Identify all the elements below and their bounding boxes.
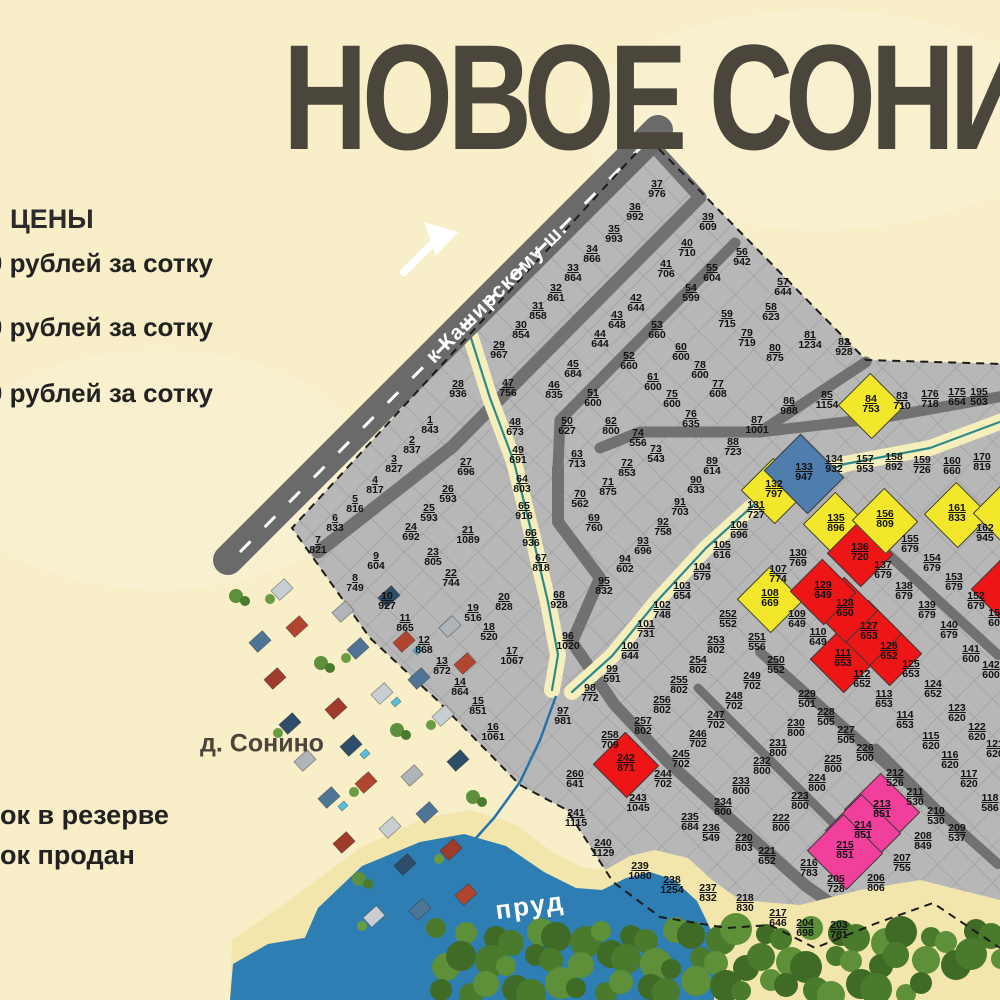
plot-213: 213851 [873,799,891,819]
plot-132: 132797 [765,479,783,499]
plot-126: 126652 [880,641,898,661]
plot-141: 141600 [962,644,980,664]
plot-49: 49691 [509,445,527,465]
status-line-reserved: ок в резерве [0,800,169,831]
plot-14: 14864 [451,677,469,697]
plot-239: 2391080 [628,861,651,881]
plot-11: 11865 [396,613,414,633]
plot-175: 175654 [948,387,966,407]
plot-74: 74556 [629,428,647,448]
plot-230: 230800 [787,718,805,738]
plot-226: 226500 [856,743,874,763]
plot-159: 159726 [913,455,931,475]
plot-108: 108669 [761,588,779,608]
plot-107: 107774 [769,564,787,584]
plot-28: 28936 [449,379,467,399]
plot-236: 236549 [702,823,720,843]
plot-54: 54599 [682,283,700,303]
plot-67: 67818 [532,553,550,573]
plot-260: 260641 [566,769,584,789]
plot-30: 30854 [512,320,530,340]
plot-58: 58623 [762,302,780,322]
plot-203: 203781 [830,920,848,940]
plot-134: 134932 [825,454,843,474]
plot-113: 113653 [875,689,893,709]
plot-249: 249702 [743,671,761,691]
plot-53: 53660 [648,320,666,340]
plot-137: 137679 [874,560,892,580]
plot-247: 247702 [707,710,725,730]
plot-86: 86988 [780,396,798,416]
plot-140: 140679 [940,620,958,640]
plot-208: 208849 [914,831,932,851]
plot-162: 162945 [976,523,994,543]
plot-241: 2411115 [565,808,587,828]
plot-221: 221652 [758,846,776,866]
plot-35: 35993 [605,224,623,244]
price-line-2: 00 рублей за сотку [0,312,213,343]
plot-216: 216783 [800,858,818,878]
plot-37: 37976 [648,179,666,199]
plot-48: 48673 [506,417,524,437]
plot-157: 157953 [856,454,874,474]
plot-195: 195503 [970,387,988,407]
plot-82: 82928 [835,337,853,357]
plot-256: 256802 [653,695,671,715]
plot-20: 20828 [495,592,513,612]
plot-27: 27696 [457,457,475,477]
plot-24: 24692 [402,522,420,542]
plot-72: 72853 [618,458,636,478]
plot-95: 95832 [595,576,613,596]
plot-52: 52660 [620,351,638,371]
plot-64: 64803 [513,474,531,494]
plot-93: 93696 [634,536,652,556]
plot-240: 2401129 [592,838,615,858]
plot-227: 227505 [837,725,855,745]
plot-121: 121620 [986,739,1000,759]
plot-142: 142600 [982,660,1000,680]
plot-65: 65916 [515,501,533,521]
plot-237: 237832 [699,883,717,903]
plot-217: 217646 [769,908,787,928]
plot-117: 117620 [960,769,978,789]
plot-83: 83710 [893,391,911,411]
land-plot-map-poster: к Каширскому ш. д. Сонино пруд 184328373… [0,0,1000,1000]
plot-122: 122620 [968,722,986,742]
plot-78: 78600 [691,360,709,380]
plot-34: 34866 [583,244,601,264]
plot-105: 105616 [713,540,731,560]
plot-90: 90633 [687,475,705,495]
plot-51: 51600 [584,388,602,408]
plot-251: 251556 [748,632,766,652]
plot-212: 212526 [886,768,904,788]
plot-110: 110649 [809,627,827,647]
plot-45: 45684 [564,359,582,379]
plot-161: 161833 [948,503,966,523]
plot-112: 112652 [853,669,871,689]
plot-225: 225800 [824,754,842,774]
plot-210: 210530 [927,806,945,826]
plot-101: 101731 [637,619,655,639]
status-line-sold: ок продан [0,840,135,871]
plot-10: 10927 [378,591,396,611]
plot-102: 102748 [653,600,671,620]
plot-26: 26593 [439,484,457,504]
plot-96: 961020 [556,631,579,651]
plot-41: 41706 [657,259,675,279]
plot-12: 12868 [415,635,433,655]
plot-220: 220803 [735,833,753,853]
plot-21: 211089 [456,525,479,545]
plot-214: 214851 [854,820,872,840]
plot-124: 124652 [924,679,942,699]
plot-233: 233800 [732,776,750,796]
plot-253: 253802 [707,635,725,655]
plot-69: 69760 [585,513,603,533]
plot-31: 31858 [529,301,547,321]
plot-98: 98772 [581,683,599,703]
plot-138: 138679 [895,581,913,601]
plot-19: 19516 [464,603,482,623]
plot-234: 234800 [714,797,732,817]
plot-73: 73543 [647,444,665,464]
plot-152: 152679 [967,591,985,611]
plot-9: 9604 [367,551,385,571]
plot-8: 8749 [346,573,364,593]
plot-80: 80875 [766,343,784,363]
plot-139: 139679 [918,600,936,620]
plot-111: 111653 [834,648,852,668]
plot-6: 6833 [326,513,344,533]
plot-79: 79719 [738,328,756,348]
plot-91: 91703 [671,497,689,517]
plot-206: 206806 [867,873,885,893]
price-legend-heading: ЦЕНЫ [10,204,94,235]
plot-92: 92758 [654,517,672,537]
plot-60: 60600 [672,342,690,362]
plot-70: 70562 [571,489,589,509]
plot-238: 2381254 [660,875,683,895]
plot-1: 1843 [421,415,439,435]
plot-248: 248702 [725,691,743,711]
plot-209: 209537 [948,823,966,843]
plot-5: 5816 [346,494,364,514]
plot-100: 100644 [621,641,639,661]
plot-242: 242871 [617,753,635,773]
plot-222: 222800 [772,813,790,833]
plot-103: 103654 [673,581,691,601]
plot-125: 125653 [902,659,920,679]
plot-84: 84753 [862,394,880,414]
plot-88: 88723 [724,437,742,457]
plot-44: 44644 [591,329,609,349]
plot-59: 59715 [718,309,736,329]
plot-254: 254802 [689,655,707,675]
plot-215: 215851 [836,840,854,860]
plot-158: 158892 [885,452,903,472]
plot-205: 205728 [827,874,845,894]
plot-109: 109649 [788,609,806,629]
plot-17: 171067 [500,646,523,666]
plot-75: 75600 [663,389,681,409]
plot-47: 47756 [499,378,517,398]
plot-207: 207755 [893,853,911,873]
plot-258: 258709 [601,730,619,750]
plot-229: 229501 [798,689,816,709]
plot-218: 218830 [736,893,754,913]
plot-32: 32861 [547,283,565,303]
plot-4: 4817 [366,475,384,495]
price-line-3: 0 рублей за сотку [0,378,213,409]
plot-13: 13872 [433,656,451,676]
plot-94: 94602 [616,554,634,574]
plot-244: 244702 [654,769,672,789]
plot-155: 155679 [901,534,919,554]
plot-56: 56942 [733,247,751,267]
plot-104: 104579 [693,562,711,582]
plot-211: 211530 [906,787,924,807]
plot-7: 7821 [309,535,327,555]
plot-29: 29967 [490,340,508,360]
plot-66: 66936 [522,528,540,548]
plot-116: 116620 [941,750,959,770]
plot-2: 2837 [403,435,421,455]
price-line-1: 00 рублей за сотку [0,248,213,279]
plot-50: 50627 [558,416,576,436]
plot-156: 156809 [876,509,894,529]
plot-77: 77608 [709,379,727,399]
plot-127: 127653 [860,621,878,641]
village-label: д. Сонино [200,730,324,759]
plot-25: 25593 [420,503,438,523]
plot-63: 63713 [568,449,586,469]
plot-130: 130769 [789,548,807,568]
plot-71: 71875 [599,477,617,497]
plot-243: 2431045 [626,793,649,813]
plot-40: 40710 [678,238,696,258]
plot-131: 131727 [747,500,765,520]
plot-18: 18520 [480,622,498,642]
plot-176: 176718 [921,389,939,409]
plot-85: 851154 [816,390,839,410]
plot-204: 204698 [796,918,814,938]
plot-257: 257802 [634,716,652,736]
plot-33: 33864 [564,263,582,283]
plot-252: 252552 [719,609,737,629]
plot-129: 129649 [814,580,832,600]
plot-68: 68928 [550,590,568,610]
plot-246: 246702 [689,729,707,749]
page-title: НОВОЕ СОНИНО [283,22,1000,172]
plot-23: 23805 [424,547,442,567]
plot-39: 39609 [699,212,717,232]
plot-106: 106696 [730,520,748,540]
pond-label: пруд [493,886,566,926]
plot-81: 811234 [798,330,821,350]
plot-55: 55604 [703,263,721,283]
plot-62: 62800 [602,416,620,436]
plot-128: 128650 [836,598,854,618]
plot-57: 57644 [774,277,792,297]
plot-133: 133947 [795,462,813,482]
plot-87: 871001 [745,415,768,435]
plot-160: 160660 [943,456,961,476]
plot-46: 46835 [545,380,563,400]
plot-43: 43648 [608,310,626,330]
plot-136: 136720 [851,542,869,562]
plot-154: 154679 [923,553,941,573]
plot-255: 255802 [670,675,688,695]
plot-15: 15851 [469,696,487,716]
plot-231: 231800 [769,738,787,758]
plot-135: 135896 [827,513,845,533]
plot-97: 97981 [554,706,572,726]
plot-61: 61600 [644,372,662,392]
plot-42: 42644 [627,293,645,313]
plot-224: 224800 [808,773,826,793]
plot-123: 123620 [948,703,966,723]
plot-228: 228505 [817,707,835,727]
plot-99: 99591 [603,664,621,684]
plot-170: 170819 [973,452,991,472]
plot-151: 151600 [988,608,1000,628]
plot-89: 89614 [703,456,721,476]
plot-250: 250552 [767,655,785,675]
plot-232: 232800 [753,756,771,776]
plot-245: 245702 [672,749,690,769]
plot-235: 235684 [681,812,699,832]
plot-115: 115620 [922,731,940,751]
plot-153: 153679 [945,572,963,592]
plot-3: 3827 [385,454,403,474]
plot-118: 118586 [981,793,999,813]
plot-223: 223800 [791,791,809,811]
plot-36: 36992 [626,202,644,222]
plot-76: 76635 [682,409,700,429]
plot-114: 114653 [896,710,914,730]
plot-16: 161061 [481,722,504,742]
plot-22: 22744 [442,568,460,588]
